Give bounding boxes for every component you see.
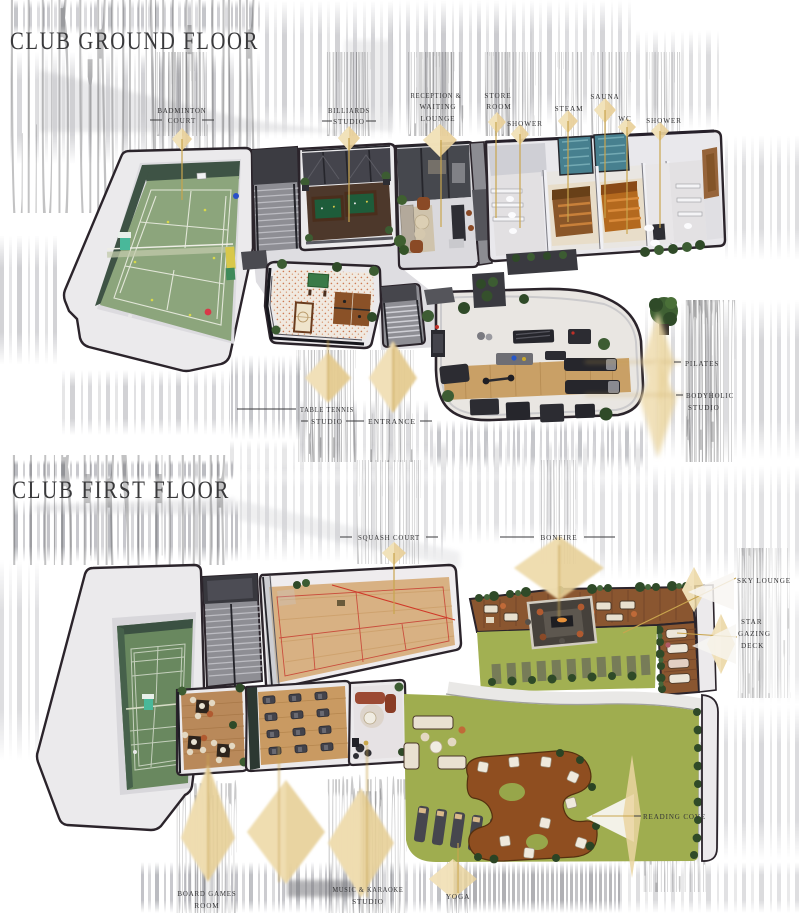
svg-text:STUDIO: STUDIO bbox=[688, 404, 720, 412]
svg-text:WC: WC bbox=[618, 115, 631, 123]
svg-text:SHOWER: SHOWER bbox=[507, 120, 543, 128]
svg-text:MUSIC & KARAOKE: MUSIC & KARAOKE bbox=[333, 886, 404, 894]
svg-text:STUDIO: STUDIO bbox=[311, 418, 343, 426]
svg-text:COURT: COURT bbox=[168, 117, 196, 125]
svg-text:STUDIO: STUDIO bbox=[352, 898, 384, 906]
svg-text:ROOM: ROOM bbox=[486, 103, 511, 111]
svg-text:PILATES: PILATES bbox=[685, 360, 719, 368]
svg-text:SAUNA: SAUNA bbox=[590, 93, 619, 101]
svg-text:ROOM: ROOM bbox=[194, 902, 219, 910]
svg-text:BONFIRE: BONFIRE bbox=[540, 534, 577, 542]
svg-text:STORE: STORE bbox=[484, 92, 511, 100]
svg-text:RECEPTION &: RECEPTION & bbox=[411, 92, 462, 100]
svg-text:CLUB FIRST FLOOR: CLUB FIRST FLOOR bbox=[12, 475, 230, 504]
svg-text:STAR: STAR bbox=[741, 618, 762, 626]
svg-text:ENTRANCE: ENTRANCE bbox=[368, 418, 416, 426]
svg-text:SHOWER: SHOWER bbox=[646, 117, 682, 125]
svg-text:SQUASH COURT: SQUASH COURT bbox=[358, 534, 420, 542]
svg-text:WAITING: WAITING bbox=[419, 103, 456, 111]
svg-text:BODYHOLIC: BODYHOLIC bbox=[686, 392, 734, 400]
svg-text:LOUNGE: LOUNGE bbox=[421, 115, 456, 123]
svg-text:GAZING: GAZING bbox=[738, 630, 771, 638]
svg-text:TABLE TENNIS: TABLE TENNIS bbox=[300, 406, 354, 414]
svg-text:BADMINTON: BADMINTON bbox=[158, 107, 207, 115]
svg-text:STUDIO: STUDIO bbox=[333, 118, 365, 126]
svg-text:CLUB GROUND FLOOR: CLUB GROUND FLOOR bbox=[10, 26, 259, 55]
svg-text:YOGA: YOGA bbox=[446, 893, 470, 901]
svg-text:DECK: DECK bbox=[741, 642, 764, 650]
svg-text:BILLIARDS: BILLIARDS bbox=[328, 107, 370, 115]
svg-text:STEAM: STEAM bbox=[555, 105, 584, 113]
svg-text:BOARD GAMES: BOARD GAMES bbox=[178, 890, 237, 898]
svg-text:SKY LOUNGE: SKY LOUNGE bbox=[737, 577, 791, 585]
svg-text:READING COVE: READING COVE bbox=[643, 813, 706, 821]
